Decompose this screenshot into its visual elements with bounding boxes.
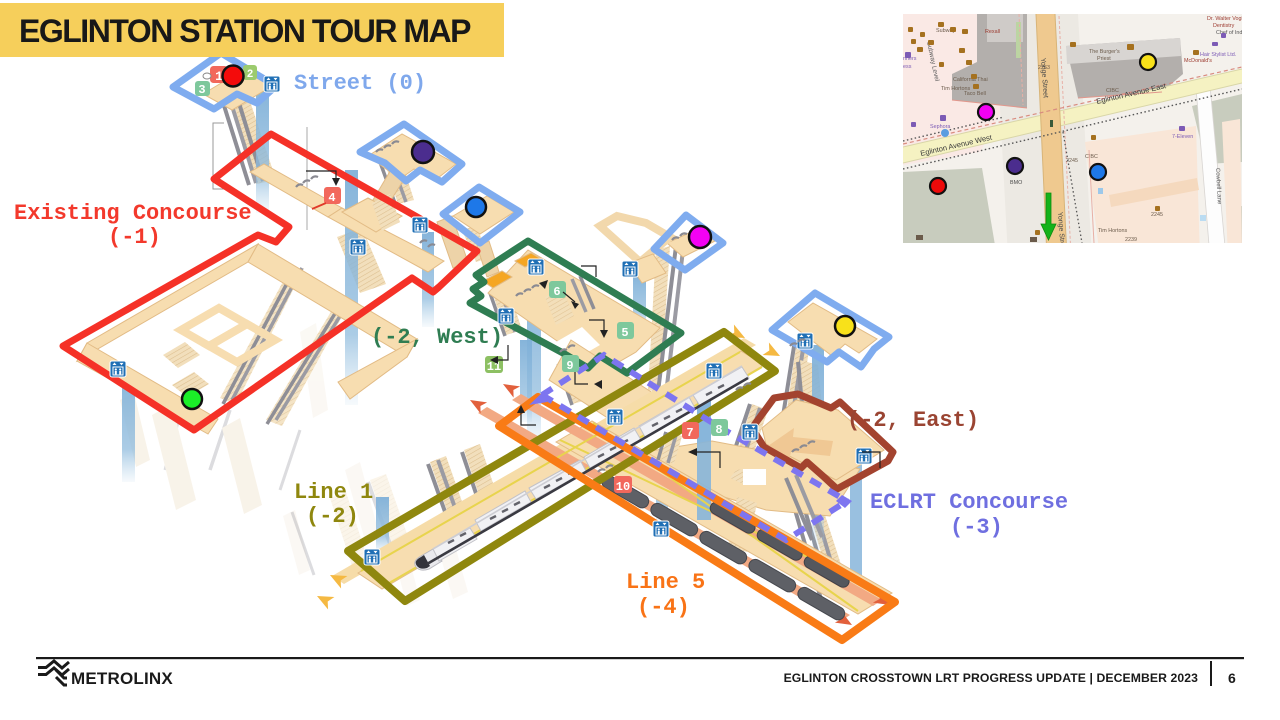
svg-text:9: 9 <box>566 359 573 373</box>
svg-text:EGLINTON CROSSTOWN LRT PROGRES: EGLINTON CROSSTOWN LRT PROGRESS UPDATE |… <box>784 671 1199 685</box>
svg-text:BMO: BMO <box>1010 180 1022 186</box>
svg-text:Rexall: Rexall <box>985 29 1000 35</box>
svg-text:2: 2 <box>247 69 254 81</box>
svg-text:ECLRT Concourse: ECLRT Concourse <box>870 490 1068 515</box>
svg-text:(-3): (-3) <box>950 515 1003 540</box>
svg-text:7: 7 <box>686 426 693 440</box>
svg-text:Dentistry: Dentistry <box>1213 23 1235 29</box>
svg-text:Line 1: Line 1 <box>294 480 373 505</box>
svg-text:2239: 2239 <box>1125 237 1137 243</box>
svg-text:Taco Bell: Taco Bell <box>964 91 986 97</box>
svg-text:7-Eleven: 7-Eleven <box>1172 134 1193 140</box>
svg-text:6: 6 <box>553 285 560 299</box>
svg-text:(-2): (-2) <box>306 504 359 529</box>
svg-text:EGLINTON STATION TOUR MAP: EGLINTON STATION TOUR MAP <box>19 13 471 49</box>
svg-text:Dr. Walter Vogl: Dr. Walter Vogl <box>1207 16 1243 22</box>
svg-text:Chef of India: Chef of India <box>1216 30 1247 36</box>
svg-text:The Burger's: The Burger's <box>1089 49 1120 55</box>
svg-text:(-4): (-4) <box>637 595 690 620</box>
svg-text:3: 3 <box>198 83 205 97</box>
svg-text:Line 5: Line 5 <box>626 570 705 595</box>
svg-text:ess: ess <box>903 64 912 70</box>
svg-text:McDonald's: McDonald's <box>1184 58 1212 64</box>
svg-text:6: 6 <box>1228 670 1236 686</box>
svg-text:Tim Hortons: Tim Hortons <box>1098 228 1127 234</box>
svg-text:METROLINX: METROLINX <box>71 669 173 688</box>
svg-text:11: 11 <box>487 360 501 374</box>
svg-text:California Thai: California Thai <box>953 77 988 83</box>
svg-text:8: 8 <box>715 423 722 437</box>
svg-text:(-2, West): (-2, West) <box>371 325 503 350</box>
svg-text:Street (0): Street (0) <box>294 71 426 96</box>
svg-text:Sephora: Sephora <box>930 124 950 130</box>
svg-text:Existing Concourse: Existing Concourse <box>14 201 252 226</box>
svg-text:(-2, East): (-2, East) <box>847 408 979 433</box>
svg-text:4: 4 <box>328 191 335 205</box>
svg-text:CIBC: CIBC <box>1085 154 1098 160</box>
svg-text:2245: 2245 <box>1151 212 1163 218</box>
svg-text:Priest: Priest <box>1097 56 1111 62</box>
svg-text:(-1): (-1) <box>108 225 161 250</box>
svg-text:10: 10 <box>616 480 630 494</box>
svg-text:5: 5 <box>621 326 628 340</box>
